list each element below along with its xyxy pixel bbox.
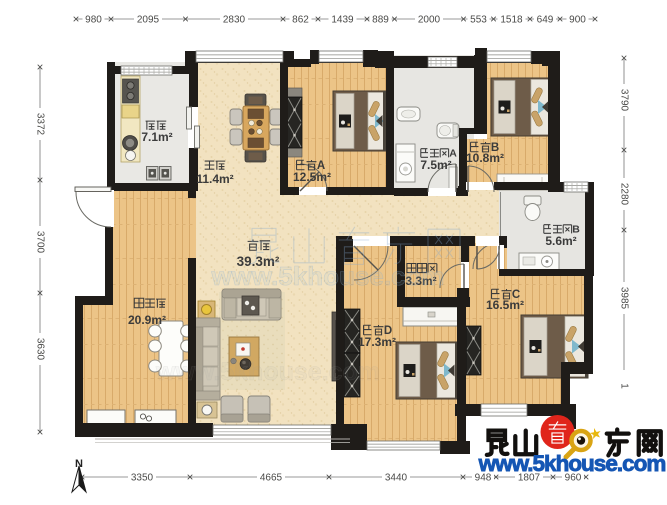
svg-text:20.9m²: 20.9m²: [128, 313, 166, 327]
svg-text:4665: 4665: [260, 473, 283, 484]
svg-text:www.5khouse.com: www.5khouse.com: [478, 451, 666, 476]
svg-text:2280: 2280: [618, 183, 629, 206]
svg-text:889: 889: [372, 15, 389, 26]
svg-text:862: 862: [292, 15, 309, 26]
svg-text:649: 649: [537, 15, 554, 26]
svg-text:1: 1: [618, 383, 629, 389]
svg-text:3630: 3630: [34, 338, 45, 361]
svg-text:2000: 2000: [418, 15, 441, 26]
svg-text:3790: 3790: [618, 89, 629, 112]
svg-text:3350: 3350: [131, 473, 154, 484]
svg-text:5.6m²: 5.6m²: [545, 234, 576, 248]
svg-text:2830: 2830: [223, 15, 246, 26]
svg-text:2095: 2095: [137, 15, 160, 26]
svg-text:16.5m²: 16.5m²: [486, 298, 524, 312]
svg-text:10.8m²: 10.8m²: [466, 151, 504, 165]
svg-text:12.5m²: 12.5m²: [293, 170, 331, 184]
svg-text:980: 980: [85, 15, 102, 26]
svg-text:11.4m²: 11.4m²: [196, 172, 233, 186]
svg-text:7.5m²: 7.5m²: [420, 158, 451, 172]
svg-text:3985: 3985: [618, 287, 629, 310]
svg-text:www.5khouse.com: www.5khouse.com: [210, 261, 444, 291]
svg-text:1439: 1439: [331, 15, 354, 26]
svg-text:7.1m²: 7.1m²: [141, 130, 172, 144]
svg-text:3440: 3440: [385, 473, 408, 484]
svg-text:www.5khouse.com: www.5khouse.com: [155, 358, 380, 386]
svg-text:900: 900: [569, 15, 586, 26]
svg-text:1518: 1518: [500, 15, 523, 26]
svg-text:3700: 3700: [34, 231, 45, 254]
svg-text:553: 553: [470, 15, 487, 26]
svg-text:3372: 3372: [34, 113, 45, 136]
svg-text:17.3m²: 17.3m²: [358, 335, 396, 349]
